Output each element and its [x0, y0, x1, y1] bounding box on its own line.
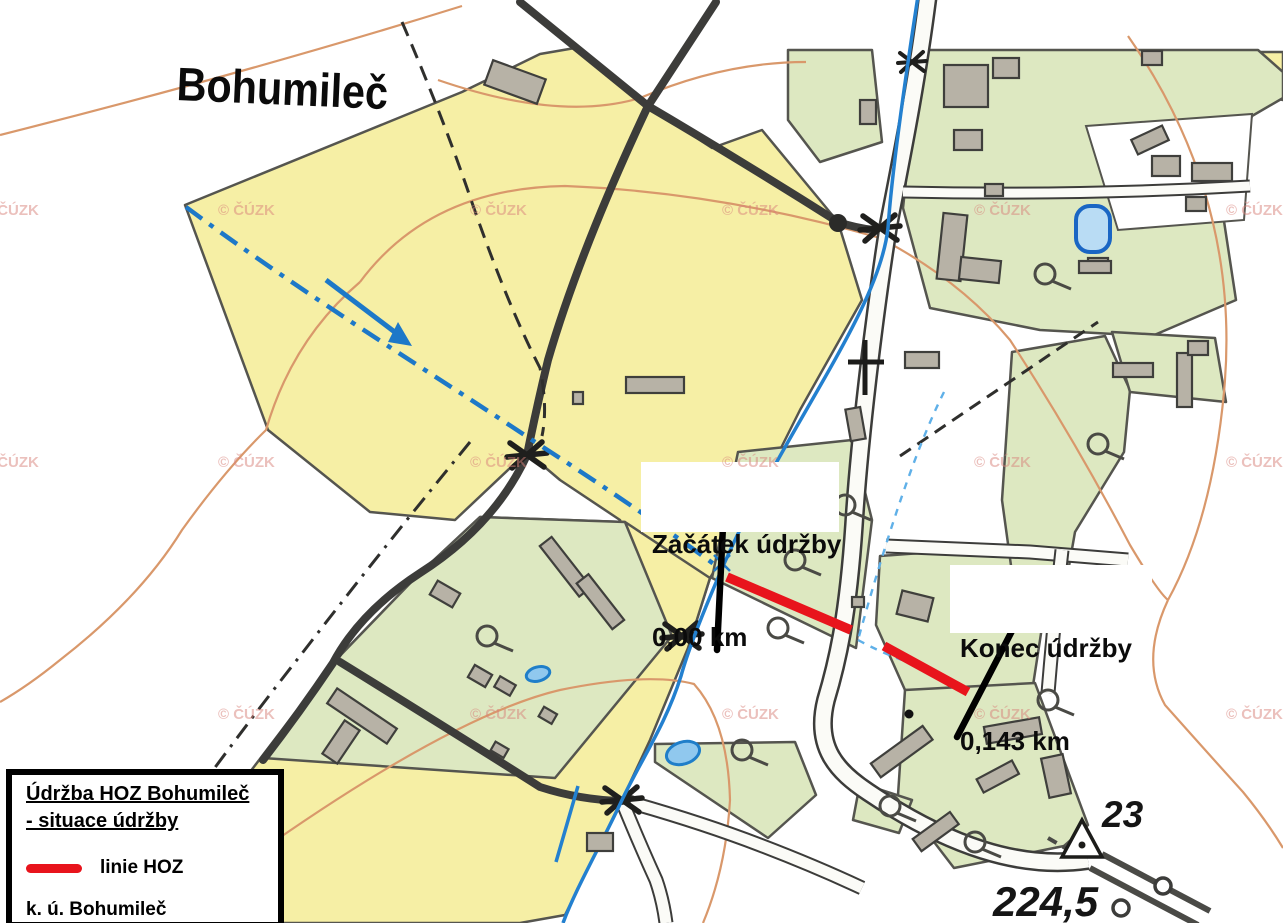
map-screenshot: © ČÚZK © ČÚZK © ČÚZK © ČÚZK © ČÚZK © ČÚZ…	[0, 0, 1283, 923]
start-annotation-line2: 0,00 km	[652, 622, 841, 653]
watermark: © ČÚZK	[0, 454, 39, 471]
watermark: © ČÚZK	[470, 454, 527, 471]
legend-item-hoz-line: linie HOZ	[26, 857, 278, 879]
watermark: © ČÚZK	[470, 706, 527, 723]
watermark: © ČÚZK	[1226, 454, 1283, 471]
legend-box: Údržba HOZ Bohumileč - situace údržby li…	[6, 769, 284, 923]
watermark: © ČÚZK	[470, 202, 527, 219]
end-annotation: Konec údržby 0,143 km	[960, 571, 1132, 788]
place-name-label: Bohumileč	[176, 56, 390, 120]
watermark: © ČÚZK	[0, 202, 39, 219]
trig-point-number: 23	[1102, 794, 1143, 836]
watermark: © ČÚZK	[218, 202, 275, 219]
point-dot	[905, 710, 914, 719]
start-annotation: Začátek údržby 0,00 km	[652, 467, 841, 684]
watermark: © ČÚZK	[722, 706, 779, 723]
watermark: © ČÚZK	[218, 454, 275, 471]
legend-title-line1: Údržba HOZ Bohumileč	[26, 781, 278, 808]
watermark: © ČÚZK	[722, 202, 779, 219]
start-annotation-line1: Začátek údržby	[652, 529, 841, 560]
watermark: © ČÚZK	[974, 202, 1031, 219]
red-line-swatch	[26, 864, 82, 873]
watermark: © ČÚZK	[218, 706, 275, 723]
watermark: © ČÚZK	[1226, 706, 1283, 723]
road-junction-dot	[829, 214, 847, 232]
end-annotation-line2: 0,143 km	[960, 726, 1132, 757]
legend-title-line2: - situace údržby	[26, 808, 278, 835]
watermark: © ČÚZK	[1226, 202, 1283, 219]
watermark: © ČÚZK	[974, 454, 1031, 471]
legend-item-label: linie HOZ	[100, 857, 183, 879]
legend-area-label: k. ú. Bohumileč	[26, 899, 278, 921]
elevation-label: 224,5	[993, 878, 1098, 923]
end-annotation-line1: Konec údržby	[960, 633, 1132, 664]
